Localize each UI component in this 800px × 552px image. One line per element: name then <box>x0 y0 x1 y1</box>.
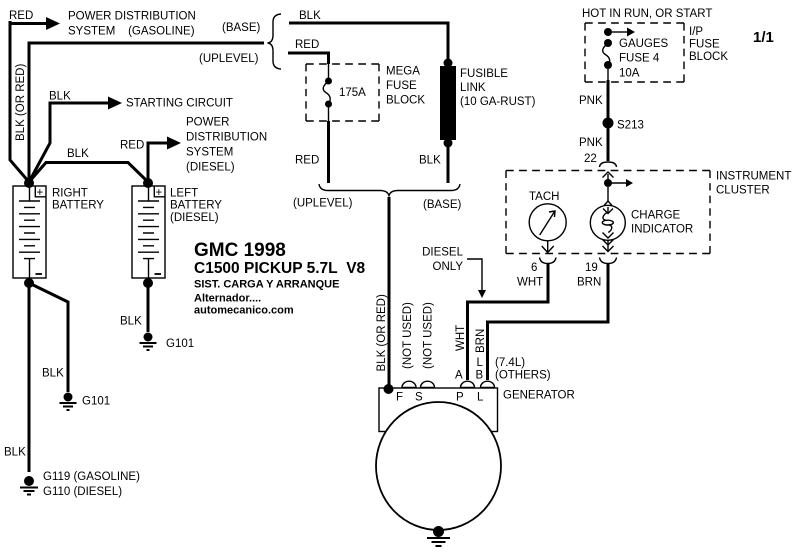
svg-text:+: + <box>37 187 44 199</box>
svg-text:(NOT USED): (NOT USED) <box>423 302 435 369</box>
svg-text:INSTRUMENT: INSTRUMENT <box>716 171 791 183</box>
svg-text:SYSTEM: SYSTEM <box>186 147 233 159</box>
svg-text:I/P: I/P <box>689 26 703 38</box>
svg-text:CLUSTER: CLUSTER <box>716 185 770 197</box>
svg-text:L: L <box>477 357 484 369</box>
svg-text:POWER: POWER <box>186 117 229 129</box>
svg-text:(UPLEVEL): (UPLEVEL) <box>199 53 259 65</box>
svg-text:TACH: TACH <box>529 191 559 203</box>
svg-text:(OTHERS): (OTHERS) <box>495 370 551 382</box>
svg-text:BLK: BLK <box>120 316 142 328</box>
svg-text:RED: RED <box>9 10 33 22</box>
svg-text:PNK: PNK <box>579 137 603 149</box>
svg-text:RED: RED <box>120 140 144 152</box>
svg-text:(BASE): (BASE) <box>222 22 261 34</box>
svg-text:SYSTEM (GASOLINE): SYSTEM (GASOLINE) <box>68 26 195 38</box>
svg-text:RIGHT: RIGHT <box>52 188 88 200</box>
svg-text:A: A <box>455 370 463 382</box>
svg-text:(BASE): (BASE) <box>423 199 462 211</box>
svg-text:GMC 1998: GMC 1998 <box>194 240 286 261</box>
svg-text:CHARGE: CHARGE <box>631 210 681 222</box>
svg-text:C1500 PICKUP 5.7L V8: C1500 PICKUP 5.7L V8 <box>194 260 366 277</box>
svg-text:6: 6 <box>531 262 537 274</box>
svg-text:BRN: BRN <box>577 277 601 289</box>
svg-text:BLK: BLK <box>42 368 64 380</box>
svg-text:FUSE 4: FUSE 4 <box>619 53 660 65</box>
svg-text:HOT IN RUN, OR START: HOT IN RUN, OR START <box>582 8 712 20</box>
svg-text:(UPLEVEL): (UPLEVEL) <box>293 198 353 210</box>
svg-text:P: P <box>456 392 464 404</box>
svg-text:LEFT: LEFT <box>170 188 198 200</box>
svg-text:10A: 10A <box>619 68 640 80</box>
svg-text:PNK: PNK <box>579 95 603 107</box>
svg-text:POWER DISTRIBUTION: POWER DISTRIBUTION <box>68 11 196 23</box>
svg-text:SIST. CARGA Y ARRANQUE: SIST. CARGA Y ARRANQUE <box>194 279 339 291</box>
svg-text:(7.4L): (7.4L) <box>495 357 525 369</box>
svg-text:FUSE: FUSE <box>689 39 720 51</box>
svg-text:(DIESEL): (DIESEL) <box>186 162 235 174</box>
svg-text:(DIESEL): (DIESEL) <box>170 212 219 224</box>
svg-text:INDICATOR: INDICATOR <box>631 224 693 236</box>
svg-text:BLK: BLK <box>4 447 26 459</box>
svg-text:DIESEL: DIESEL <box>422 247 464 259</box>
svg-text:WHT: WHT <box>517 277 543 289</box>
svg-text:1/1: 1/1 <box>753 29 774 46</box>
svg-text:GAUGES: GAUGES <box>619 38 669 50</box>
svg-text:BRN: BRN <box>475 329 487 353</box>
svg-text:BLK (OR RED): BLK (OR RED) <box>15 64 27 141</box>
svg-text:FUSE: FUSE <box>386 80 417 92</box>
svg-text:GENERATOR: GENERATOR <box>503 390 575 402</box>
svg-text:S213: S213 <box>617 120 644 132</box>
svg-text:BLOCK: BLOCK <box>386 95 425 107</box>
svg-text:Alternador....: Alternador.... <box>194 293 261 305</box>
svg-text:LINK: LINK <box>460 82 486 94</box>
svg-text:BATTERY: BATTERY <box>52 200 104 212</box>
svg-text:BLK: BLK <box>419 155 441 167</box>
svg-text:F: F <box>396 392 403 404</box>
svg-text:STARTING CIRCUIT: STARTING CIRCUIT <box>126 98 233 110</box>
svg-text:BLK (OR RED): BLK (OR RED) <box>376 294 388 371</box>
svg-text:RED: RED <box>295 155 319 167</box>
svg-text:B: B <box>476 370 484 382</box>
svg-text:175A: 175A <box>339 87 366 99</box>
svg-text:(NOT USED): (NOT USED) <box>402 302 414 369</box>
svg-text:BLOCK: BLOCK <box>689 51 728 63</box>
svg-text:G101: G101 <box>82 396 110 408</box>
svg-text:S: S <box>415 392 423 404</box>
svg-text:automecanico.com: automecanico.com <box>194 305 294 317</box>
svg-text:RED: RED <box>295 39 319 51</box>
svg-text:G101: G101 <box>166 338 194 350</box>
svg-text:DISTRIBUTION: DISTRIBUTION <box>186 132 267 144</box>
svg-text:L: L <box>477 392 484 404</box>
svg-text:19: 19 <box>585 262 598 274</box>
svg-text:G110 (DIESEL): G110 (DIESEL) <box>43 486 122 498</box>
svg-text:+: + <box>156 187 163 199</box>
svg-text:BLK: BLK <box>49 91 71 103</box>
svg-text:FUSIBLE: FUSIBLE <box>460 68 508 80</box>
svg-text:BATTERY: BATTERY <box>170 200 222 212</box>
svg-text:WHT: WHT <box>455 325 467 351</box>
svg-text:ONLY: ONLY <box>433 261 464 273</box>
svg-text:BLK: BLK <box>299 10 321 22</box>
svg-text:G119 (GASOLINE): G119 (GASOLINE) <box>43 471 140 483</box>
svg-text:BLK: BLK <box>67 148 89 160</box>
svg-text:MEGA: MEGA <box>386 66 420 78</box>
svg-text:(10 GA-RUST): (10 GA-RUST) <box>460 96 536 108</box>
svg-text:22: 22 <box>584 153 597 165</box>
